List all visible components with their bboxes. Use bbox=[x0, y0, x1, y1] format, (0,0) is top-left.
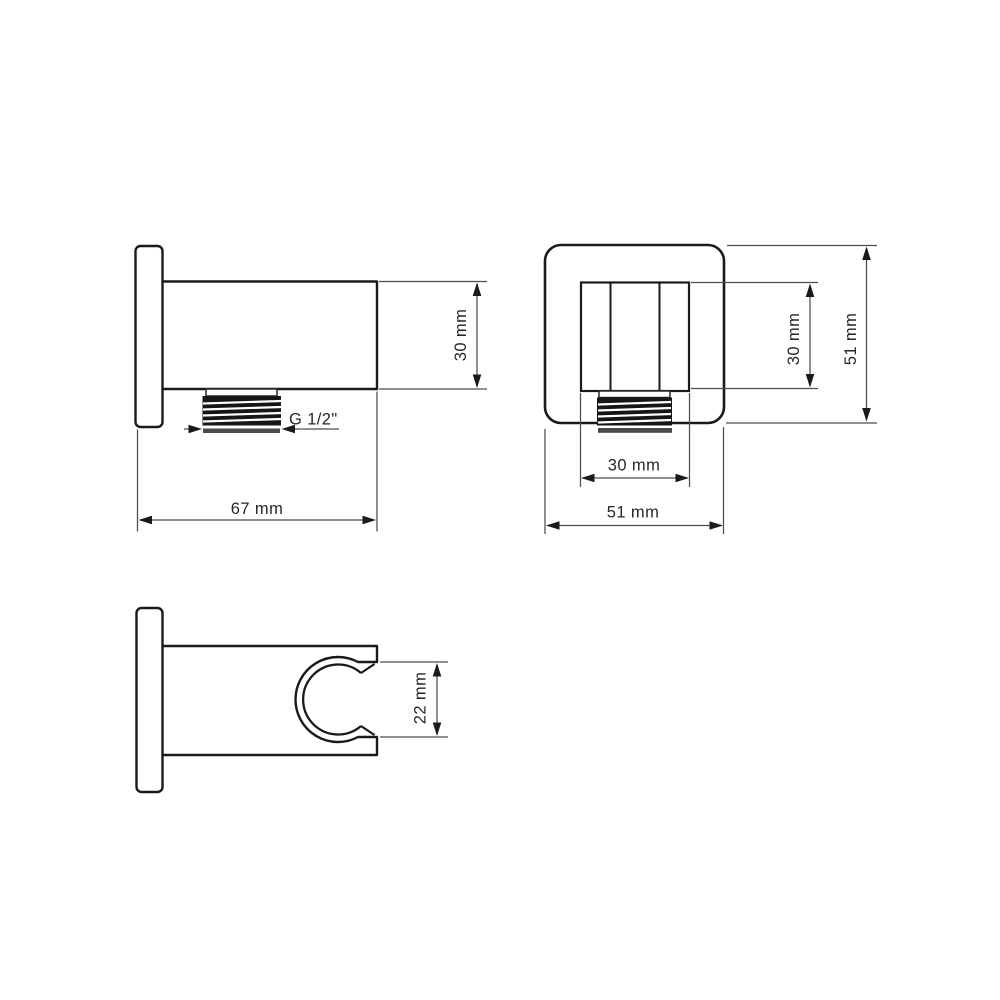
front-inner-height-label: 30 mm bbox=[785, 313, 803, 365]
front-view: 30 mm 51 mm 30 mm 51 mm bbox=[545, 245, 877, 534]
side-width-label: 67 mm bbox=[231, 500, 283, 518]
front-outer-width-label: 51 mm bbox=[607, 504, 659, 522]
dim-front-inner-height: 30 mm bbox=[691, 283, 818, 389]
front-inner-width-label: 30 mm bbox=[608, 457, 660, 475]
side-elbow-body bbox=[163, 282, 377, 390]
holder-clip-inner-wall bbox=[303, 665, 361, 735]
dim-side-height: 30 mm bbox=[379, 282, 487, 390]
thread-collar bbox=[599, 391, 670, 398]
holder-wall-flange bbox=[137, 608, 163, 792]
thread-collar bbox=[206, 389, 277, 396]
side-wall-flange bbox=[136, 246, 163, 427]
holder-jaw-top bbox=[361, 664, 375, 673]
dim-holder-opening: 22 mm bbox=[380, 662, 448, 737]
front-thread bbox=[597, 391, 672, 433]
side-height-label: 30 mm bbox=[452, 309, 470, 361]
front-outer-height-label: 51 mm bbox=[842, 313, 860, 365]
thread-end bbox=[203, 429, 280, 434]
dim-front-outer-width: 51 mm bbox=[545, 427, 724, 534]
technical-drawing: 30 mm 67 mm G 1/2" bbox=[0, 0, 1000, 1000]
holder-opening-label: 22 mm bbox=[412, 672, 430, 724]
side-thread bbox=[203, 389, 282, 433]
side-view: 30 mm 67 mm G 1/2" bbox=[136, 246, 488, 532]
holder-view: 22 mm bbox=[137, 608, 449, 792]
thread-size-label: G 1/2" bbox=[289, 411, 338, 429]
holder-body bbox=[163, 646, 377, 755]
thread-end bbox=[598, 428, 672, 433]
holder-jaw-bottom bbox=[361, 726, 375, 735]
drawing-canvas: 30 mm 67 mm G 1/2" bbox=[0, 0, 1000, 1000]
front-body bbox=[581, 283, 689, 392]
